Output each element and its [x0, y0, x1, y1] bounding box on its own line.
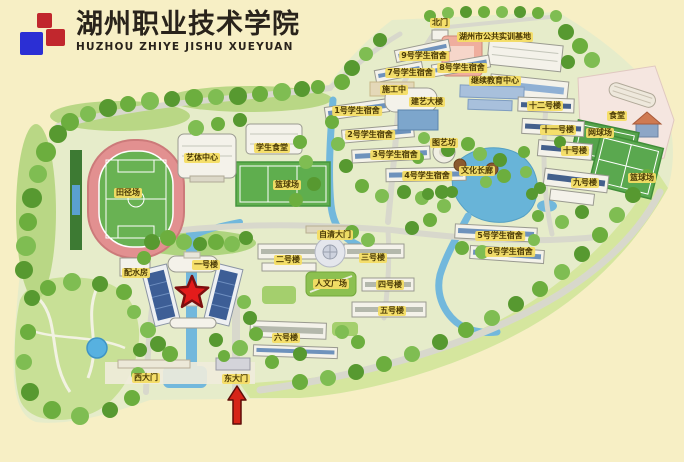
tree-icon [252, 86, 268, 102]
tree-icon [29, 165, 47, 183]
tree-icon [554, 136, 566, 148]
tree-icon [294, 81, 310, 97]
tree-icon [412, 152, 424, 164]
tree-icon [375, 189, 389, 203]
tree-icon [460, 6, 472, 18]
tree-icon [160, 230, 176, 246]
logo-blue-square-icon [20, 32, 43, 55]
tree-icon [164, 91, 180, 107]
tree-icon [550, 10, 562, 22]
tree-icon [574, 246, 590, 262]
tree-icon [455, 241, 469, 255]
tree-icon [80, 106, 96, 122]
tree-icon [208, 89, 224, 105]
tree-icon [71, 407, 89, 425]
tree-icon [339, 159, 353, 173]
tree-icon [92, 276, 108, 292]
tree-icon [22, 188, 42, 208]
tree-icon [320, 370, 336, 386]
tree-icon [102, 402, 118, 418]
tree-icon [137, 251, 151, 265]
tree-icon [532, 210, 544, 222]
tree-icon [422, 188, 434, 200]
tree-icon [461, 137, 475, 151]
tree-icon [373, 33, 387, 47]
school-name-pinyin: HUZHOU ZHIYE JISHU XUEYUAN [76, 41, 300, 53]
tree-icon [480, 176, 492, 188]
tree-icon [361, 233, 375, 247]
tree-icon [478, 6, 490, 18]
tree-icon [131, 367, 145, 381]
tree-icon [15, 261, 33, 279]
tree-icon [218, 350, 230, 362]
tree-icon [404, 346, 420, 362]
tree-icon [345, 225, 359, 239]
tree-icon [335, 325, 349, 339]
tree-icon [325, 115, 339, 129]
tree-icon [442, 7, 454, 19]
tree-icon [584, 52, 600, 68]
tree-icon [592, 227, 608, 243]
tree-icon [351, 335, 365, 349]
tree-icon [229, 87, 247, 105]
jianyi-building-shape [385, 88, 437, 112]
tree-icon [532, 7, 544, 19]
tree-icon [441, 143, 455, 157]
tree-icon [299, 155, 313, 169]
tree-icon [432, 334, 448, 350]
campus-map-illustration [0, 0, 684, 462]
tree-icon [518, 146, 530, 158]
logo-red-square-icon [46, 29, 65, 46]
tree-icon [405, 221, 419, 235]
tree-icon [532, 281, 548, 297]
campus-map: 湖州职业技术学院 HUZHOU ZHIYE JISHU XUEYUAN 北门湖州… [0, 0, 684, 462]
tree-icon [526, 188, 538, 200]
tree-icon [289, 193, 303, 207]
pavilion-icon [454, 159, 466, 171]
tree-icon [193, 237, 207, 251]
tree-icon [424, 10, 436, 22]
tree-icon [473, 147, 487, 161]
tree-icon [140, 322, 156, 338]
tree-icon [331, 137, 345, 151]
tree-icon [514, 6, 526, 18]
tree-icon [558, 24, 574, 40]
canal-bridge [184, 252, 200, 258]
tree-icon [293, 135, 307, 149]
tree-icon [528, 234, 540, 246]
tree-icon [348, 364, 364, 380]
tree-icon [572, 38, 588, 54]
tree-icon [334, 74, 350, 90]
tree-icon [554, 264, 570, 280]
tree-icon [497, 169, 511, 183]
tree-icon [496, 6, 508, 18]
tree-icon [520, 166, 532, 178]
tree-icon [575, 205, 589, 219]
tree-icon [224, 236, 240, 252]
tree-icon [293, 347, 307, 361]
school-name: 湖州职业技术学院 [76, 10, 300, 40]
tree-icon [185, 89, 203, 107]
tree-icon [232, 340, 248, 356]
tree-icon [344, 60, 360, 76]
tree-icon [423, 213, 437, 227]
tree-icon [16, 354, 32, 370]
tree-icon [475, 245, 489, 259]
tree-icon [176, 234, 192, 250]
tree-icon [188, 120, 204, 136]
tree-icon [133, 343, 147, 357]
tree-icon [144, 234, 160, 250]
tree-icon [127, 305, 141, 319]
tree-icon [359, 47, 373, 61]
tree-icon [239, 231, 253, 245]
tree-icon [19, 213, 37, 231]
tree-icon [397, 185, 411, 199]
tree-icon [237, 295, 251, 309]
tree-icon [484, 310, 500, 326]
student-canteen-building [246, 124, 302, 154]
tree-icon [437, 199, 451, 213]
tree-icon [162, 346, 178, 362]
tree-icon [21, 383, 39, 401]
tree-icon [209, 333, 223, 347]
tree-icon [249, 327, 263, 341]
tree-icon [24, 290, 40, 306]
tree-icon [243, 311, 257, 325]
tree-icon [273, 83, 291, 101]
tree-icon [124, 390, 140, 406]
tree-icon [63, 273, 81, 291]
logo-red-square-icon [37, 13, 52, 28]
tree-icon [625, 187, 641, 203]
tree-icon [508, 296, 524, 312]
tree-icon [211, 117, 225, 131]
tree-icon [555, 215, 569, 229]
tree-icon [609, 207, 625, 223]
tree-icon [418, 132, 430, 144]
tree-icon [43, 401, 61, 419]
tree-icon [208, 234, 224, 250]
tree-icon [355, 179, 369, 193]
tree-icon [640, 169, 654, 183]
west-gate-colonnade [118, 360, 190, 368]
tree-icon [265, 355, 279, 369]
tree-icon [311, 80, 325, 94]
school-logo-mark [16, 10, 68, 60]
tree-icon [376, 356, 392, 372]
school-logo: 湖州职业技术学院 HUZHOU ZHIYE JISHU XUEYUAN [16, 10, 300, 60]
tree-icon [116, 284, 132, 300]
garden-pond [87, 338, 107, 358]
tree-icon [99, 99, 117, 117]
tree-icon [458, 322, 474, 338]
tree-icon [141, 92, 159, 110]
tree-icon [493, 153, 507, 167]
tree-icon [20, 324, 36, 340]
tree-icon [446, 186, 458, 198]
tree-icon [292, 374, 308, 390]
tree-icon [40, 280, 56, 296]
tree-icon [120, 96, 136, 112]
tree-icon [36, 142, 56, 162]
tree-icon [49, 125, 67, 143]
tree-icon [307, 177, 321, 191]
tree-icon [16, 236, 36, 256]
tree-icon [561, 55, 575, 69]
tree-icon [233, 113, 247, 127]
